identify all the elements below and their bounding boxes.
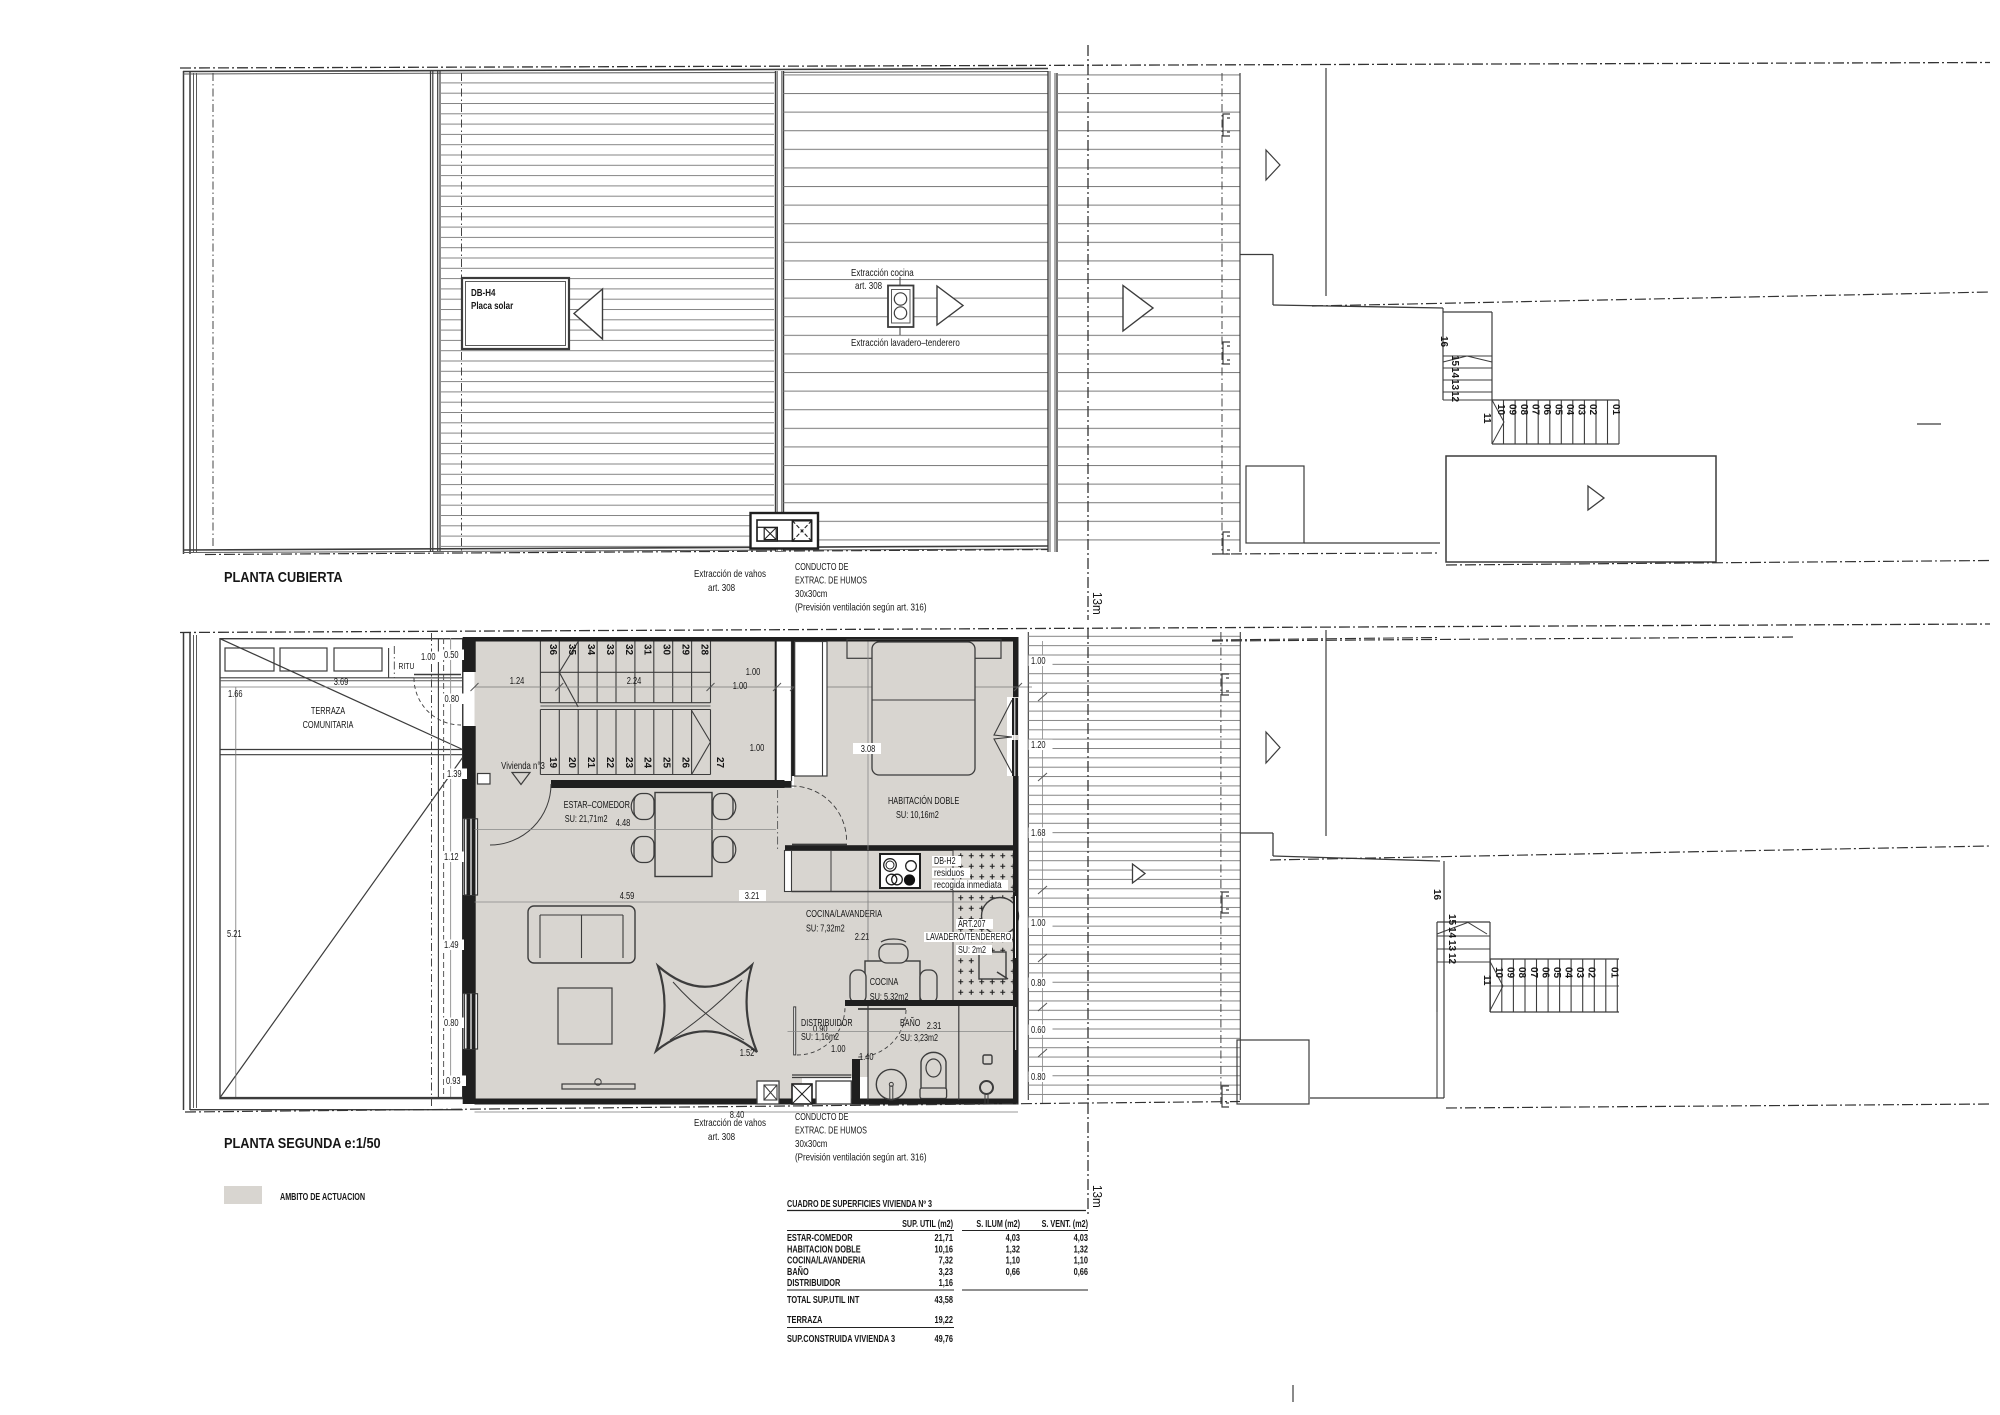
svg-text:06: 06 — [1539, 967, 1550, 979]
svg-text:0.60: 0.60 — [1031, 1024, 1046, 1035]
svg-text:BAÑO: BAÑO — [900, 1017, 921, 1028]
svg-text:CONDUCTO DE: CONDUCTO DE — [795, 1111, 849, 1122]
svg-text:35: 35 — [566, 644, 577, 656]
svg-text:4,03: 4,03 — [1006, 1232, 1020, 1243]
svg-text:2.31: 2.31 — [927, 1020, 942, 1031]
svg-text:12: 12 — [1446, 953, 1457, 965]
svg-text:1.12: 1.12 — [444, 851, 459, 862]
svg-text:36: 36 — [547, 644, 558, 656]
svg-text:TERRAZA: TERRAZA — [311, 705, 346, 717]
svg-text:11: 11 — [1481, 413, 1492, 424]
svg-text:0.80: 0.80 — [1031, 977, 1046, 988]
svg-text:29: 29 — [680, 644, 691, 656]
svg-text:1.00: 1.00 — [1031, 917, 1046, 928]
svg-text:0.80: 0.80 — [444, 1017, 459, 1028]
svg-text:32: 32 — [623, 644, 634, 656]
svg-text:1.00: 1.00 — [746, 666, 761, 677]
svg-text:3.08: 3.08 — [861, 743, 876, 754]
svg-text:COCINA/LAVANDERIA: COCINA/LAVANDERIA — [787, 1255, 866, 1266]
svg-text:21: 21 — [585, 757, 596, 769]
svg-text:13m: 13m — [1090, 592, 1105, 615]
svg-text:PLANTA CUBIERTA: PLANTA CUBIERTA — [224, 568, 343, 585]
svg-text:5.21: 5.21 — [227, 928, 242, 939]
svg-text:1,32: 1,32 — [1074, 1243, 1088, 1254]
svg-text:07: 07 — [1530, 404, 1541, 416]
svg-text:1.68: 1.68 — [1031, 827, 1046, 838]
svg-text:23: 23 — [623, 757, 634, 769]
svg-text:2.24: 2.24 — [627, 675, 642, 686]
svg-text:0,66: 0,66 — [1006, 1266, 1020, 1277]
svg-text:12: 12 — [1449, 391, 1460, 403]
svg-text:05: 05 — [1551, 967, 1562, 979]
svg-text:05: 05 — [1553, 404, 1564, 416]
svg-text:S. ILUM (m2): S. ILUM (m2) — [976, 1218, 1020, 1229]
svg-text:1,10: 1,10 — [1074, 1255, 1088, 1266]
svg-text:2.21: 2.21 — [855, 931, 870, 942]
svg-text:1.20: 1.20 — [1031, 739, 1046, 750]
svg-text:31: 31 — [642, 644, 653, 656]
svg-text:SU: 7,32m2: SU: 7,32m2 — [806, 922, 845, 934]
svg-text:1.52: 1.52 — [740, 1047, 755, 1058]
svg-text:HABITACION DOBLE: HABITACION DOBLE — [787, 1243, 861, 1254]
svg-text:4.59: 4.59 — [620, 890, 635, 901]
svg-text:06: 06 — [1541, 404, 1552, 416]
svg-text:(Previsión ventilación según: (Previsión ventilación según art. 316) — [795, 1152, 927, 1163]
svg-text:3.21: 3.21 — [745, 890, 760, 901]
svg-text:16: 16 — [1438, 336, 1449, 348]
svg-text:1.24: 1.24 — [510, 675, 525, 686]
svg-text:49,76: 49,76 — [935, 1333, 954, 1344]
svg-text:Extracción cocina: Extracción cocina — [851, 267, 914, 278]
svg-text:09: 09 — [1506, 404, 1517, 416]
svg-text:RITU: RITU — [399, 661, 415, 671]
svg-text:19: 19 — [547, 757, 558, 769]
svg-text:Extracción de vahos: Extracción de vahos — [694, 568, 766, 579]
svg-text:08: 08 — [1518, 404, 1529, 416]
svg-text:art. 308: art. 308 — [708, 582, 735, 593]
svg-text:03: 03 — [1576, 404, 1587, 416]
svg-text:residuos: residuos — [934, 867, 965, 878]
svg-text:1.40: 1.40 — [859, 1051, 874, 1062]
svg-text:27: 27 — [714, 757, 725, 769]
svg-text:3,23: 3,23 — [939, 1266, 953, 1277]
svg-text:1,32: 1,32 — [1006, 1243, 1020, 1254]
svg-text:07: 07 — [1528, 967, 1539, 979]
svg-text:04: 04 — [1562, 967, 1573, 979]
svg-text:Vivienda n°3: Vivienda n°3 — [501, 760, 545, 771]
svg-text:03: 03 — [1574, 967, 1585, 979]
svg-text:TOTAL SUP.UTIL INT: TOTAL SUP.UTIL INT — [787, 1294, 860, 1305]
svg-text:30x30cm: 30x30cm — [795, 588, 827, 599]
svg-text:recogida inmediata: recogida inmediata — [934, 879, 1002, 890]
svg-text:CUADRO DE SUPERFICIES VIVIENDA: CUADRO DE SUPERFICIES VIVIENDA Nº 3 — [787, 1198, 932, 1209]
svg-text:0.80: 0.80 — [1031, 1071, 1046, 1082]
svg-text:ESTAR-COMEDOR: ESTAR-COMEDOR — [787, 1232, 853, 1243]
svg-text:Extracción lavadero–tenderero: Extracción lavadero–tenderero — [851, 337, 960, 348]
svg-text:DB-H2: DB-H2 — [934, 855, 956, 866]
svg-text:ESTAR–COMEDOR: ESTAR–COMEDOR — [564, 799, 631, 811]
svg-text:14: 14 — [1449, 367, 1460, 379]
svg-text:33: 33 — [604, 644, 615, 656]
svg-text:1,10: 1,10 — [1006, 1255, 1020, 1266]
svg-text:SU: 3,23m2: SU: 3,23m2 — [900, 1032, 938, 1043]
svg-text:09: 09 — [1505, 967, 1516, 979]
svg-text:DB-H4: DB-H4 — [471, 287, 495, 298]
svg-text:21,71: 21,71 — [935, 1232, 954, 1243]
svg-text:1.00: 1.00 — [750, 742, 765, 753]
svg-text:0.90: 0.90 — [813, 1023, 828, 1034]
svg-text:HABITACIÓN DOBLE: HABITACIÓN DOBLE — [888, 795, 959, 807]
svg-text:COMUNITARIA: COMUNITARIA — [303, 719, 355, 731]
svg-text:CONDUCTO DE: CONDUCTO DE — [795, 561, 849, 572]
svg-text:13: 13 — [1446, 940, 1457, 952]
svg-text:34: 34 — [585, 644, 596, 656]
svg-text:Placa solar: Placa solar — [471, 300, 514, 311]
svg-text:25: 25 — [661, 757, 672, 769]
svg-text:14: 14 — [1446, 927, 1457, 939]
svg-text:BAÑO: BAÑO — [787, 1266, 809, 1277]
svg-text:AMBITO DE ACTUACION: AMBITO DE ACTUACION — [280, 1191, 365, 1202]
svg-text:ART.207: ART.207 — [958, 918, 986, 929]
svg-text:43,58: 43,58 — [935, 1294, 954, 1305]
svg-text:COCINA/LAVANDERIA: COCINA/LAVANDERIA — [806, 908, 883, 920]
svg-text:SU: 2m2: SU: 2m2 — [958, 944, 986, 955]
svg-text:(Previsión ventilación según: (Previsión ventilación según art. 316) — [795, 602, 927, 613]
svg-text:SU: 10,16m2: SU: 10,16m2 — [896, 809, 939, 821]
svg-text:1.00: 1.00 — [421, 651, 436, 662]
svg-text:SUP.CONSTRUIDA VIVIENDA 3: SUP.CONSTRUIDA VIVIENDA 3 — [787, 1333, 895, 1344]
svg-text:10: 10 — [1493, 967, 1504, 979]
svg-text:01: 01 — [1610, 404, 1621, 416]
svg-text:11: 11 — [1481, 975, 1492, 986]
svg-text:10,16: 10,16 — [935, 1243, 954, 1254]
svg-text:SU: 21,71m2: SU: 21,71m2 — [565, 813, 608, 825]
svg-text:0.93: 0.93 — [446, 1075, 461, 1086]
svg-text:1,16: 1,16 — [939, 1277, 953, 1288]
svg-text:3.69: 3.69 — [334, 676, 349, 687]
svg-text:28: 28 — [698, 644, 709, 656]
svg-text:30x30cm: 30x30cm — [795, 1138, 827, 1149]
svg-text:02: 02 — [1587, 404, 1598, 416]
svg-text:1.00: 1.00 — [1031, 655, 1046, 666]
svg-text:EXTRAC. DE HUMOS: EXTRAC. DE HUMOS — [795, 1124, 867, 1135]
svg-text:04: 04 — [1564, 404, 1575, 416]
svg-text:4,03: 4,03 — [1074, 1232, 1088, 1243]
svg-text:0,66: 0,66 — [1074, 1266, 1088, 1277]
svg-text:Extracción de vahos: Extracción de vahos — [694, 1117, 766, 1128]
svg-text:1.00: 1.00 — [831, 1043, 846, 1054]
svg-text:16: 16 — [1431, 889, 1442, 901]
svg-text:art. 308: art. 308 — [708, 1131, 735, 1142]
svg-text:10: 10 — [1495, 404, 1506, 416]
svg-text:COCINA: COCINA — [870, 976, 899, 988]
svg-text:DISTRIBUIDOR: DISTRIBUIDOR — [787, 1277, 841, 1288]
svg-text:SUP. UTIL (m2): SUP. UTIL (m2) — [902, 1218, 953, 1229]
svg-text:01: 01 — [1608, 967, 1619, 979]
svg-text:7,32: 7,32 — [939, 1255, 953, 1266]
svg-text:art. 308: art. 308 — [855, 280, 882, 291]
svg-text:24: 24 — [642, 757, 653, 769]
svg-text:PLANTA SEGUNDA e:1/50: PLANTA SEGUNDA e:1/50 — [224, 1134, 381, 1151]
svg-text:LAVADERO/TENDERERO: LAVADERO/TENDERERO — [926, 931, 1011, 942]
svg-text:TERRAZA: TERRAZA — [787, 1314, 823, 1325]
svg-text:15: 15 — [1449, 355, 1460, 367]
svg-text:S. VENT. (m2): S. VENT. (m2) — [1042, 1218, 1088, 1229]
svg-text:1.49: 1.49 — [444, 939, 459, 950]
svg-text:0.50: 0.50 — [444, 649, 459, 660]
svg-text:4.48: 4.48 — [616, 817, 631, 828]
svg-text:EXTRAC. DE HUMOS: EXTRAC. DE HUMOS — [795, 574, 867, 585]
svg-text:19,22: 19,22 — [935, 1314, 954, 1325]
svg-text:1.39: 1.39 — [447, 768, 462, 779]
svg-text:15: 15 — [1446, 914, 1457, 926]
svg-text:08: 08 — [1516, 967, 1527, 979]
svg-text:13: 13 — [1449, 379, 1460, 391]
svg-text:13m: 13m — [1090, 1185, 1105, 1208]
svg-text:20: 20 — [566, 757, 577, 769]
svg-text:26: 26 — [680, 757, 691, 769]
svg-text:1.00: 1.00 — [733, 680, 748, 691]
svg-text:30: 30 — [661, 644, 672, 656]
svg-text:1.66: 1.66 — [228, 688, 243, 699]
svg-text:02: 02 — [1586, 967, 1597, 979]
svg-text:0.80: 0.80 — [445, 693, 460, 704]
svg-text:22: 22 — [604, 757, 615, 769]
